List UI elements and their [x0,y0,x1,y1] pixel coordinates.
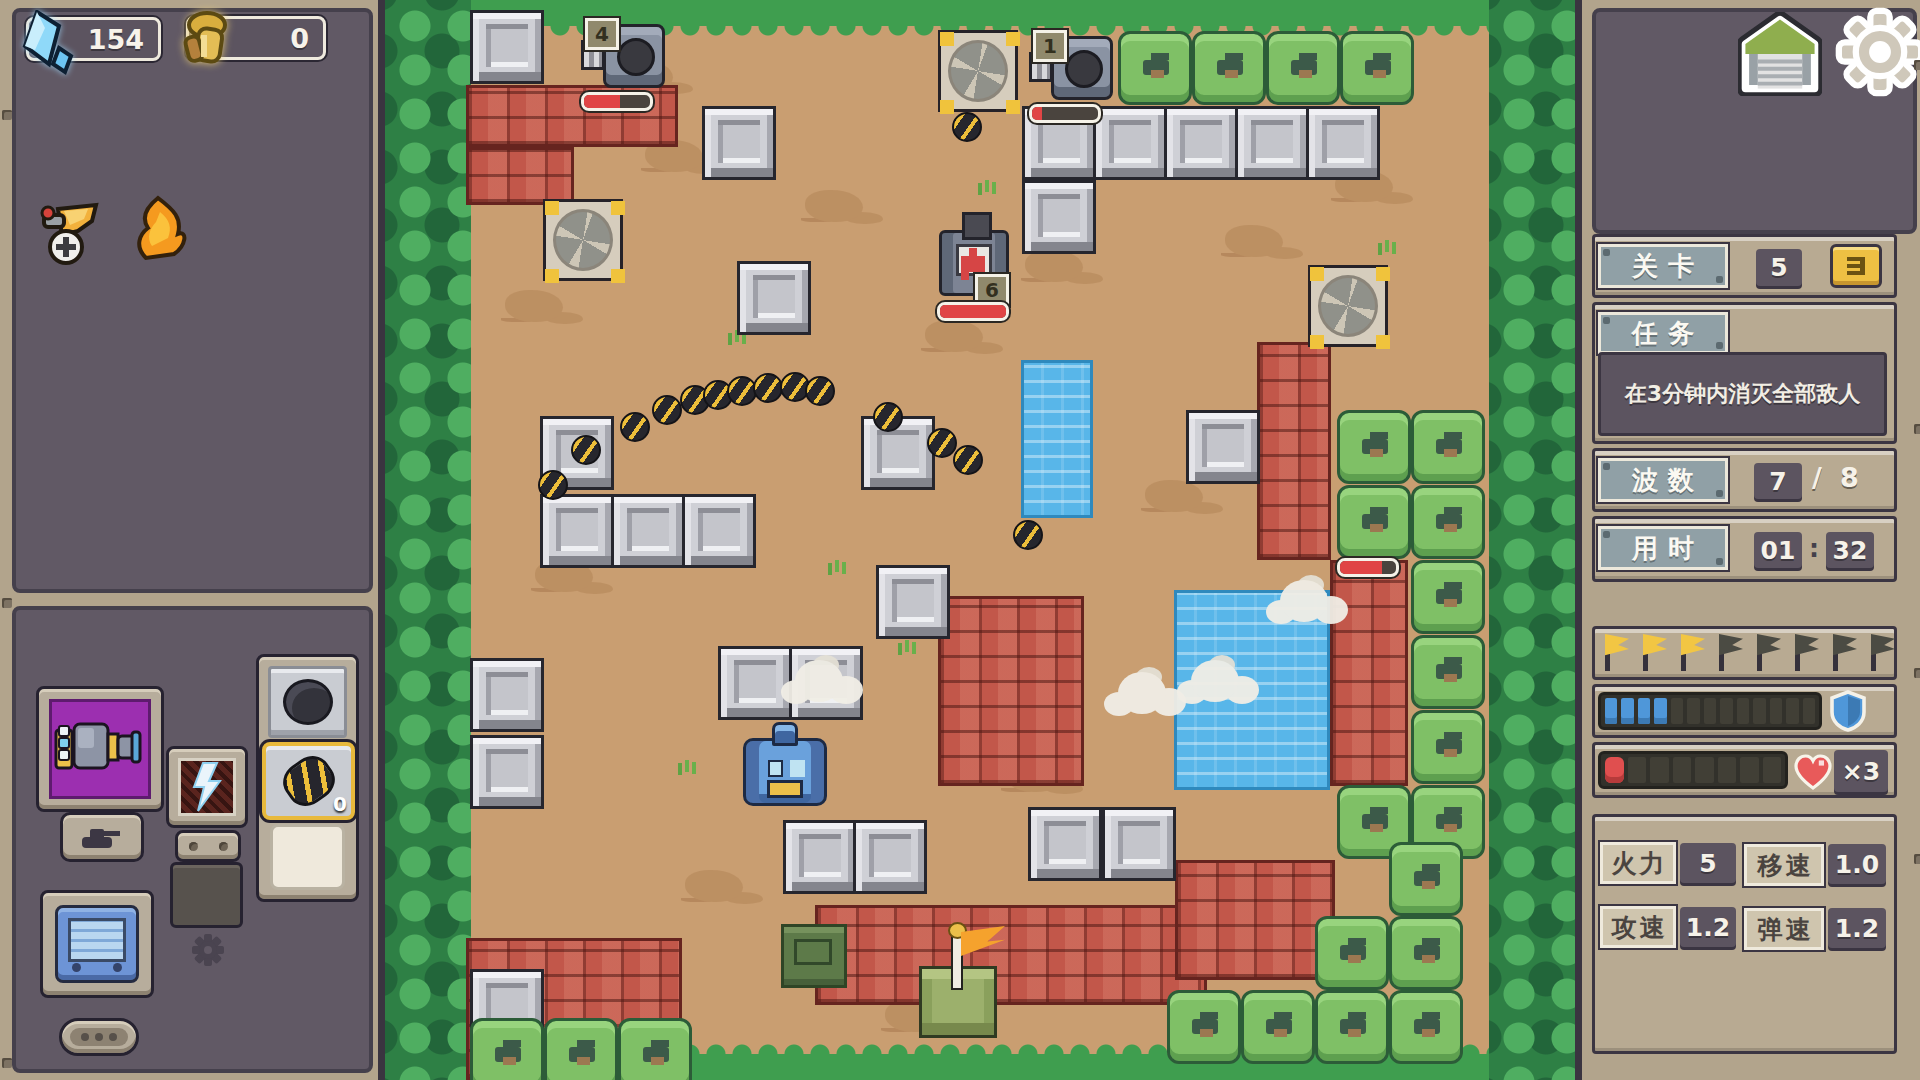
stone-block [470,735,544,809]
bush-tile [1266,31,1340,105]
grass-tuft [985,180,989,192]
screw-icon [2,598,12,608]
bush-tile [470,1018,544,1080]
bar-segment [1673,757,1692,783]
smoke-puff [795,660,843,702]
lightning-icon [190,762,224,812]
garage-button[interactable] [1738,12,1822,96]
bomb-projectile [620,412,650,442]
bomb-ammo-slot[interactable] [268,666,347,738]
enemy-turret: 4 [585,18,671,114]
health-bar [1598,751,1788,789]
tank-button[interactable] [60,812,144,862]
crystal-count: 154 [88,24,144,55]
stone-block [737,261,811,335]
bush-tile [1340,31,1414,105]
bar-segment [1621,698,1633,724]
empty-ammo-slot[interactable] [270,824,345,890]
bush-tile [1241,990,1315,1064]
level-select-button[interactable] [1830,244,1882,288]
dirt-patch [1025,250,1083,282]
bush-tile [1315,916,1389,990]
ammo-count: 0 [333,792,347,816]
screw-icon [1716,490,1723,497]
brick-wall [938,596,1084,786]
bar-segment [1786,698,1798,724]
fan-trap-tile [1308,265,1388,347]
stone-block [1164,106,1238,180]
winged-wheel-icon[interactable] [38,197,100,265]
stone-block [470,658,544,732]
stone-block [702,106,776,180]
bomb-projectile [1013,520,1043,550]
screw-icon [189,842,198,851]
screw-icon [2,110,12,120]
stone-block [876,565,950,639]
screw-icon [2,1058,12,1068]
brick-wall [466,147,574,205]
screw-icon [1603,463,1610,470]
level-value: 5 [1756,249,1802,286]
time-seconds: 32 [1826,532,1874,568]
shield-bar [1598,692,1822,730]
bar-segment [1695,757,1714,783]
bush-tile [1315,990,1389,1064]
gold-count: 0 [290,23,309,54]
dirt-patch [505,290,563,322]
striped-bullet-icon [275,749,341,814]
brick-wall [815,905,1207,1005]
bush-tile [544,1018,618,1080]
stone-block [1306,106,1380,180]
tank-icon [78,823,126,851]
bar-segment [1605,698,1617,724]
bar-segment [1687,698,1699,724]
time-minutes: 01 [1754,532,1802,568]
weapon-slot-bg [49,699,151,799]
bar-segment [1654,698,1666,724]
stone-block [470,10,544,84]
mission-label-text: 任务 [1622,316,1704,351]
tree-border-right [1489,0,1575,1080]
grass-tuft [685,760,689,772]
stone-block [682,494,756,568]
left-bottom-panel: 0 [12,606,373,1073]
hidden-enemy-healthbar [1337,558,1407,578]
wave-separator: / [1812,462,1822,493]
supply-crate [781,924,847,988]
game-map[interactable]: 416 [385,0,1575,1080]
wave-label: 波数 [1598,458,1728,502]
screw-icon [1914,854,1920,864]
stat-movespeed-value: 1.0 [1828,844,1886,884]
stat-firepower-label: 火力 [1600,842,1676,884]
bomb-projectile [805,376,835,406]
empty-slot[interactable] [170,862,243,928]
time-label-text: 用时 [1622,531,1704,566]
bar-segment [1803,698,1815,724]
screw-icon [1716,342,1723,349]
bomb-projectile [873,402,903,432]
bush-tile [1411,560,1485,634]
lives-count: ×3 [1834,750,1888,792]
weapon-slot[interactable] [36,686,164,812]
lightning-slot-bg [178,758,236,816]
left-sidebar: 154 0 [0,0,385,1080]
fan-trap-tile [938,30,1018,112]
wave-flag-dark [1716,634,1743,672]
bar-segment [1770,698,1782,724]
settings-gear-button[interactable] [1834,6,1920,98]
radio-device-icon [55,905,139,983]
stone-block [1186,410,1260,484]
bar-segment [1720,698,1732,724]
bar-segment [1605,757,1624,783]
wave-label-text: 波数 [1622,463,1704,498]
right-sidebar: 关卡 5 任务 在3分钟内消灭全部敌人 波数 7 / 8 用时 [1575,0,1920,1080]
shield-icon [1828,690,1868,732]
bar-segment [1704,698,1716,724]
stone-block [1102,807,1176,881]
mission-text: 在3分钟内消灭全部敌人 [1598,352,1887,436]
bush-tile [1192,31,1266,105]
oval-button[interactable] [59,1018,139,1056]
screw-icon [1603,531,1610,538]
screw-icon [1603,249,1610,256]
bomb-projectile [952,112,982,142]
cannon-icon [54,718,146,780]
screw-icon [1914,424,1920,434]
wave-flag-dark [1868,634,1895,672]
screw-icon [1914,668,1920,678]
mission-label: 任务 [1598,312,1728,354]
bush-tile [1411,710,1485,784]
bomb-projectile [571,435,601,465]
crystal-icon [17,10,79,76]
dot-icon [109,1033,117,1041]
bomb-projectile [538,470,568,500]
screw-icon [1914,60,1920,70]
wave-flag-gold [1602,634,1629,672]
wave-flag-gold [1640,634,1667,672]
bush-tile [1337,485,1411,559]
stat-attackspeed-value: 1.2 [1680,907,1736,947]
stat-attackspeed-label: 攻速 [1600,906,1676,948]
bush-tile [1167,990,1241,1064]
device-slot[interactable] [40,890,154,998]
brick-wall [1257,342,1331,560]
dot-icon [81,1033,89,1041]
wave-flag-gold [1678,634,1705,672]
screw-icon [1716,558,1723,565]
stat-bulletspeed-value: 1.2 [1828,908,1886,948]
bomb-projectile [753,373,783,403]
bush-tile [1389,842,1463,916]
brick-wall [1175,860,1335,980]
dirt-patch [1145,480,1203,512]
bush-tile [1389,990,1463,1064]
bush-tile [1389,916,1463,990]
selected-ammo-slot[interactable]: 0 [262,742,355,820]
bush-tile [1337,410,1411,484]
grass-tuft [1385,240,1389,252]
bush-tile [618,1018,692,1080]
dirt-patch [805,190,863,222]
dirt-patch [925,320,983,352]
bar-segment [1650,757,1669,783]
level-label-text: 关卡 [1622,249,1704,284]
bomb-icon [283,679,333,725]
stone-block [783,820,857,894]
bar-segment [1753,698,1765,724]
bar-segment [1638,698,1650,724]
smoke-puff [1191,660,1239,702]
screw-icon [1603,317,1610,324]
dirt-patch [685,870,743,902]
ability-slot[interactable] [166,746,248,828]
bar-segment [1671,698,1683,724]
slot-connector [175,830,241,862]
stone-block [611,494,685,568]
game-screen: 154 0 [0,0,1920,1080]
gold-counter: 0 [186,16,326,60]
time-label: 用时 [1598,526,1728,570]
wave-flags [1602,634,1895,672]
player-tank [741,726,831,812]
level-label: 关卡 [1598,244,1728,288]
wave-flag-dark [1830,634,1857,672]
bar-segment [1628,757,1647,783]
bar-segment [1740,757,1759,783]
enemy-turret: 1 [1033,30,1119,126]
tree-border-left [385,0,471,1080]
bush-tile [1118,31,1192,105]
stone-block [540,494,614,568]
device-screen [68,918,126,962]
time-colon: : [1809,534,1819,563]
stone-block [1235,106,1309,180]
device-knob [113,963,122,972]
wave-flag-dark [1754,634,1781,672]
heart-icon [1794,754,1832,790]
smoke-puff [1280,580,1328,622]
crystal-counter: 154 [26,17,161,61]
base-flag-block [917,938,1001,1042]
stone-block [853,820,927,894]
screw-icon [1716,276,1723,283]
wave-flag-dark [1792,634,1819,672]
list-icon [1842,252,1870,280]
screw-icon [219,842,228,851]
grass-tuft [905,640,909,652]
enemy-medic-tank: 6 [935,214,1015,324]
stone-block [1028,807,1102,881]
flame-icon[interactable] [126,194,190,266]
stat-firepower-value: 5 [1680,843,1736,883]
stone-block [1022,180,1096,254]
fan-trap-tile [543,199,623,281]
left-top-panel: 154 0 [12,8,373,593]
grass-tuft [835,560,839,572]
gold-icon [177,9,237,79]
bush-tile [1411,485,1485,559]
bar-segment [1763,757,1782,783]
wave-total: 8 [1840,462,1859,493]
dot-icon [95,1033,103,1041]
stat-movespeed-label: 移速 [1744,844,1824,886]
bar-segment [1718,757,1737,783]
oval-button-face [70,1028,128,1046]
brick-wall [1330,560,1408,786]
smoke-puff [1118,672,1166,714]
bomb-projectile [927,428,957,458]
small-gear-icon[interactable] [190,932,226,968]
wave-current: 7 [1754,463,1802,499]
stone-block [718,646,792,720]
bomb-projectile [953,445,983,475]
dirt-patch [1225,225,1283,257]
water-pool [1021,360,1093,518]
stat-bulletspeed-label: 弹速 [1744,908,1824,950]
bush-tile [1411,410,1485,484]
bomb-projectile [652,395,682,425]
device-knob [72,963,81,972]
bush-tile [1411,635,1485,709]
bar-segment [1737,698,1749,724]
